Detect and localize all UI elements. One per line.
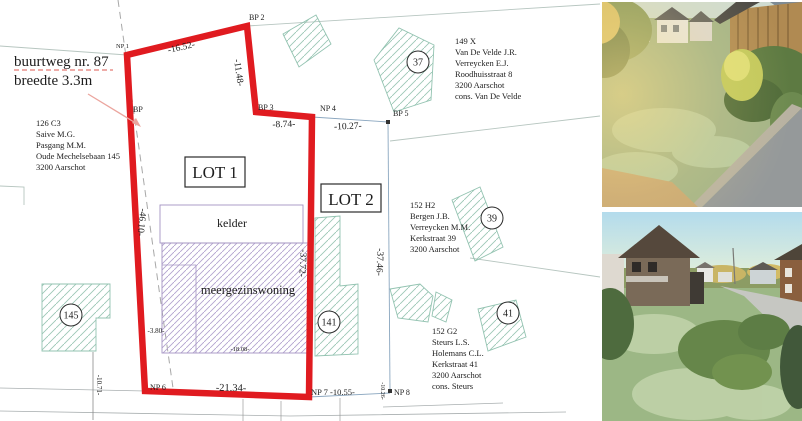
photo-aerial-bottom: [602, 212, 802, 421]
warm-light-overlay: [602, 2, 802, 207]
circle-145: 145: [64, 311, 79, 322]
buurtweg-note-line2: breedte 3.3m: [14, 73, 93, 89]
photo-bottom-scene: [602, 212, 802, 421]
owner-line: 152 G2: [432, 326, 457, 336]
owner-line: 149 X: [455, 36, 476, 46]
photo-aerial-top: [602, 2, 802, 207]
point-bp3: BP 3: [258, 103, 274, 112]
owner-line: Van De Velde J.R.: [455, 47, 517, 57]
owner-line: Roodhuisstraat 8: [455, 69, 512, 79]
point-bp: BP: [133, 105, 143, 114]
circle-37: 37: [413, 58, 423, 69]
owner-line: Verreycken E.J.: [455, 58, 509, 68]
owner-line: Pasgang M.M.: [36, 140, 86, 150]
bp5-marker: [386, 120, 390, 124]
survey-plan: buurtweg nr. 87 breedte 3.3m LOT 1 LOT 2…: [0, 0, 602, 421]
point-bp5: BP 5: [393, 109, 409, 118]
owner-line: 3200 Aarschot: [410, 244, 460, 254]
owner-line: cons. Van De Velde: [455, 91, 521, 101]
lot2-label: LOT 2: [328, 190, 374, 209]
lot1-label: LOT 1: [192, 163, 238, 182]
point-np1: NP 1: [116, 43, 129, 50]
buurtweg-note-line1: buurtweg nr. 87: [14, 54, 109, 70]
point-np6: NP 6: [150, 383, 166, 392]
meergezinswoning-label: meergezinswoning: [201, 283, 296, 297]
owner-line: Kerkstraat 41: [432, 359, 478, 369]
point-np4: NP 4: [320, 104, 336, 113]
point-np7-dim: NP 7 -10.55-: [311, 387, 355, 397]
owner-line: Bergen J.B.: [410, 211, 450, 221]
dim-10-27: -10.27-: [334, 122, 362, 133]
point-bp2: BP 2: [249, 13, 265, 22]
owner-line: 126 C3: [36, 118, 61, 128]
owner-line: Steurs L.S.: [432, 337, 470, 347]
dim-37-46: -37.46-: [374, 248, 385, 276]
owner-line: 152 H2: [410, 200, 435, 210]
owner-line: Kerkstraat 39: [410, 233, 456, 243]
point-np8: NP 8: [394, 388, 410, 397]
circle-141: 141: [322, 318, 337, 329]
owner-line: Verreycken M.M.: [410, 222, 470, 232]
dim-3-80: -3.80-: [148, 327, 166, 335]
dim-37-72: -37.72-: [296, 249, 307, 277]
circle-39: 39: [487, 214, 497, 225]
owner-line: 3200 Aarschot: [36, 162, 86, 172]
owner-line: cons. Steurs: [432, 381, 473, 391]
meergezinswoning-outline: [162, 243, 310, 353]
photo-top-scene: [602, 2, 802, 207]
dim-8-74: -8.74-: [272, 120, 295, 131]
kelder-label: kelder: [217, 216, 247, 230]
dim-10-71: -10.71-: [95, 375, 103, 396]
dim-21-34: -21.34-: [216, 383, 247, 395]
owner-line: Saive M.G.: [36, 129, 75, 139]
owner-line: Holemans C.L.: [432, 348, 484, 358]
owner-line: Oude Mechelsebaan 145: [36, 151, 120, 161]
listing-composite: buurtweg nr. 87 breedte 3.3m LOT 1 LOT 2…: [0, 0, 802, 421]
dim-18-08: -18.08-: [231, 346, 250, 353]
dim-10-26: -10.26-: [379, 382, 385, 400]
circle-41: 41: [503, 309, 513, 320]
owner-line: 3200 Aarschot: [455, 80, 505, 90]
np8-marker: [388, 389, 392, 393]
owner-line: 3200 Aarschot: [432, 370, 482, 380]
